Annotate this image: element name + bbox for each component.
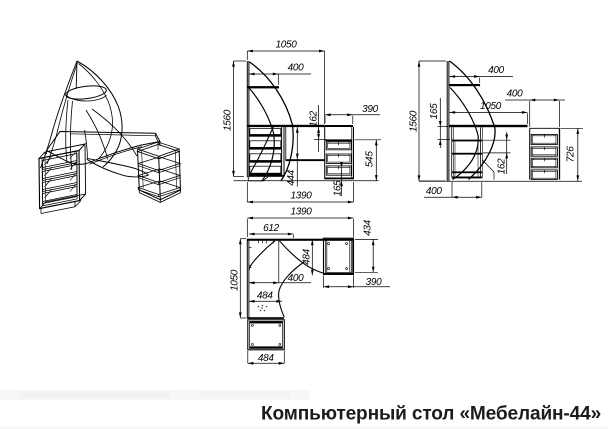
svg-text:545: 545 <box>365 151 376 168</box>
svg-text:1390: 1390 <box>290 191 312 202</box>
svg-text:1050: 1050 <box>480 101 502 112</box>
svg-text:726: 726 <box>566 146 577 163</box>
svg-text:612: 612 <box>263 223 280 234</box>
svg-text:390: 390 <box>366 277 383 288</box>
svg-text:162: 162 <box>497 158 508 175</box>
svg-text:390: 390 <box>362 104 379 115</box>
svg-text:1390: 1390 <box>290 207 312 218</box>
svg-text:444: 444 <box>286 169 297 186</box>
svg-text:434: 434 <box>362 219 373 236</box>
svg-text:400: 400 <box>288 63 305 74</box>
svg-text:1050: 1050 <box>230 269 241 291</box>
svg-text:484: 484 <box>257 290 274 301</box>
svg-text:400: 400 <box>288 273 305 284</box>
svg-text:1050: 1050 <box>275 40 297 51</box>
svg-text:162: 162 <box>309 110 320 127</box>
svg-text:400: 400 <box>488 65 505 76</box>
svg-text:484: 484 <box>302 248 313 265</box>
svg-text:1560: 1560 <box>223 109 234 131</box>
svg-text:400: 400 <box>507 89 524 100</box>
svg-text:165: 165 <box>429 103 440 120</box>
svg-text:400: 400 <box>426 186 443 197</box>
svg-text:Компьютерный стол «Мебелайн-44: Компьютерный стол «Мебелайн-44» <box>261 404 601 425</box>
svg-text:165: 165 <box>333 180 344 197</box>
svg-text:484: 484 <box>258 353 275 364</box>
svg-text:1560: 1560 <box>409 110 420 132</box>
